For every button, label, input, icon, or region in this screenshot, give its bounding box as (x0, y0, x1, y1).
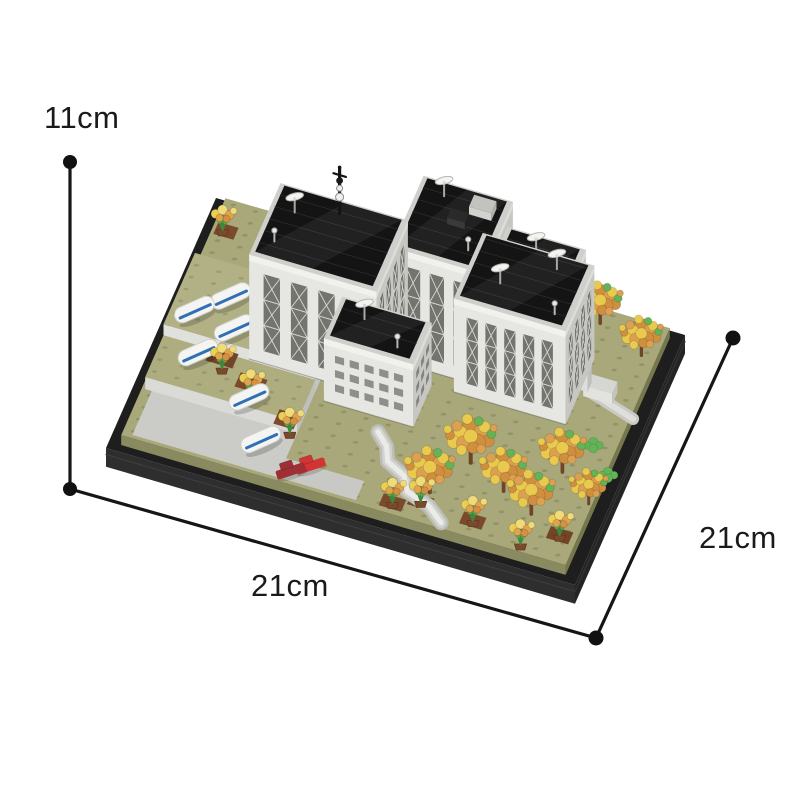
depth-line-top-dot (726, 331, 741, 346)
depth-dimension-label: 21cm (699, 520, 777, 555)
height-line-bottom-dot (63, 482, 77, 496)
product-dimension-image: 11cm 21cm 21cm (0, 0, 800, 800)
lego-model-illustration (106, 166, 685, 604)
building-block (454, 233, 595, 425)
front-corner-dot (589, 631, 604, 646)
height-dimension-label: 11cm (44, 100, 120, 135)
scene-canvas: 11cm 21cm 21cm (0, 0, 800, 800)
width-dimension-label: 21cm (251, 568, 329, 603)
height-line-top-dot (63, 155, 77, 169)
